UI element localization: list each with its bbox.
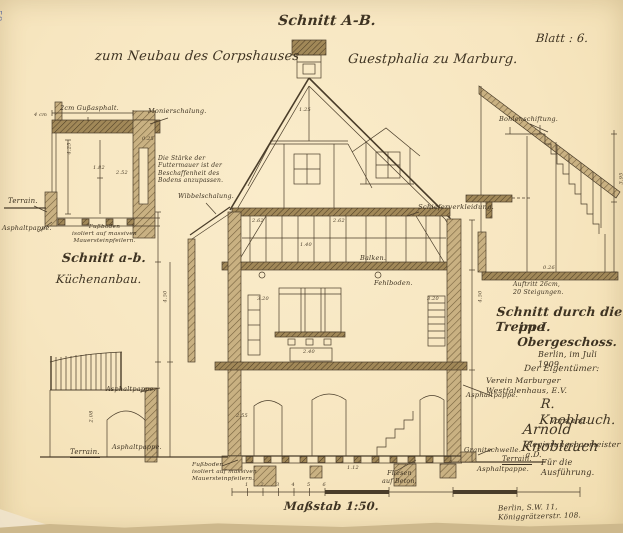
label-asphaltpappe-lower: Asphaltpappe. (112, 444, 162, 452)
label-bohlenschiftung: Bohlenschiftung. (499, 116, 558, 124)
address-line: Berlin, S.W. 11, Königgrätzerstr. 108. (498, 501, 623, 522)
label-fussboden-main: Fußboden isoliert auf massiven Mauerstei… (192, 462, 257, 483)
label-auftritt: Auftritt 26cm, 20 Steigungen. (513, 281, 564, 296)
sheet-number: Blatt : 6. (535, 31, 589, 45)
kitchen-caption-1: Schnitt a-b. (61, 250, 147, 265)
owner-heading: Der Eigentümer: (524, 364, 600, 374)
label-asphaltpappe-right-lower: Asphaltpappe. (477, 465, 529, 473)
kitchen-section-drawing (4, 102, 168, 238)
label-terrain-main: Terrain. (70, 448, 100, 458)
label-fussboden-kitchen: Fußboden isoliert auf massiven Mauerstei… (72, 224, 137, 245)
project-title-right: Guestphalia zu Marburg. (347, 52, 518, 68)
label-terrain-right: Terrain. (502, 455, 532, 465)
note-futtermauer: Die Stärke der Futtermauer ist der Besch… (158, 155, 223, 184)
label-balken: Balken. (360, 255, 386, 263)
section-title: Schnitt A-B. (277, 13, 376, 30)
label-schieferverkleidung: Schieferverkleidung. (418, 203, 494, 211)
scale-bar (232, 487, 580, 497)
label-fliesen: Fliesen auf Beton. (382, 470, 417, 485)
label-terrain-kitchen: Terrain. (8, 197, 38, 206)
label-asphaltpappe-upper: Asphaltpappe. (106, 386, 156, 394)
execution-line: Für die Ausführung. (541, 457, 623, 477)
label-monierschalung: Monierschalung. (148, 108, 207, 116)
label-asphaltpappe-right-upper: Asphaltpappe. (466, 391, 518, 399)
project-title-left: zum Neubau des Corpshauses (94, 49, 300, 65)
label-asphaltpappe-kitchen: Asphaltpappe. (2, 225, 52, 233)
kitchen-caption-2: Küchenanbau. (55, 272, 142, 286)
label-gussasphalt: 2cm Gußasphalt. (60, 105, 119, 113)
scale-caption: Maßstab 1:50. (283, 499, 379, 513)
label-wibbelschalung: Wibbelschalung. (178, 193, 234, 201)
label-fehlboden: Fehlboden. (374, 280, 413, 288)
label-granitschwelle: Granitschwelle. (464, 446, 521, 454)
archive-stamp: 58 (0, 10, 2, 21)
blueprint-sheet: 58 Schnitt A-B. zum Neubau des Corpshaus… (0, 0, 623, 533)
stair-caption-2: im I. Obergeschoss. (517, 320, 623, 349)
